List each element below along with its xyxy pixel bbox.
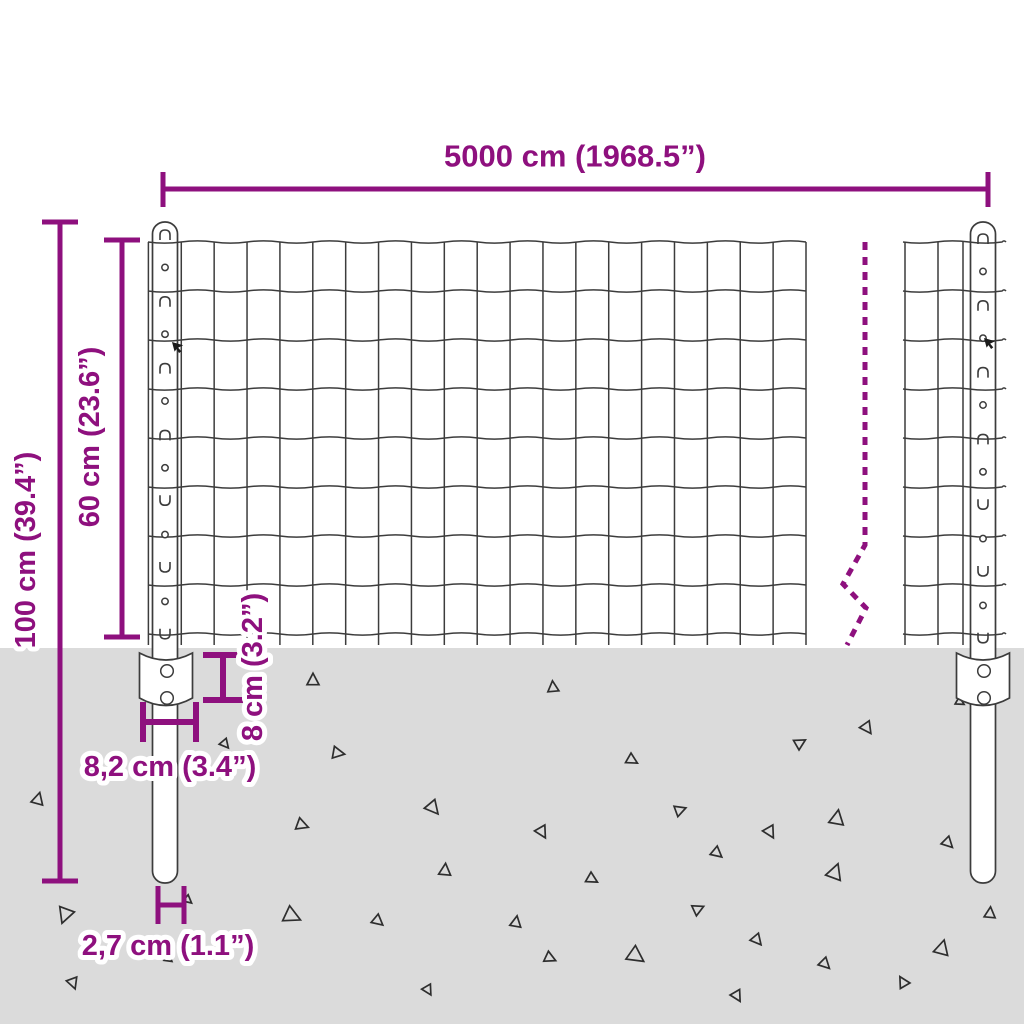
bracket-hole — [161, 692, 174, 705]
post-hole — [162, 398, 168, 404]
width-dimension-line — [163, 172, 988, 207]
width-label: 5000 cm (1968.5”) — [444, 139, 706, 174]
post-hole — [162, 465, 168, 471]
mesh-panel — [148, 241, 1006, 645]
panel-break-dashed-line — [843, 242, 866, 645]
panel-height-dimension-line — [104, 240, 140, 637]
post-hole — [980, 268, 986, 274]
bracket-hole — [978, 665, 991, 678]
post-hole — [980, 535, 986, 541]
post-hole — [162, 331, 168, 337]
post-hole — [980, 469, 986, 475]
left-post — [153, 222, 178, 883]
bracket-hole — [978, 692, 991, 705]
post-hole — [162, 264, 168, 270]
total-height-label: 100 cm (39.4”) — [10, 452, 42, 649]
diagram-canvas: 5000 cm (1968.5”) 100 cm (39.4”) 60 cm (… — [0, 0, 1024, 1024]
post-hole — [162, 598, 168, 604]
panel-height-label: 60 cm (23.6”) — [74, 347, 106, 528]
anchor-width-label: 8,2 cm (3.4”) — [84, 751, 256, 783]
post-hole — [980, 602, 986, 608]
post-hole — [162, 531, 168, 537]
right-post — [971, 222, 996, 883]
bracket-hole — [161, 665, 174, 678]
post-diameter-label: 2,7 cm (1.1”) — [82, 930, 254, 962]
fence-dimension-diagram: 5000 cm (1968.5”) 100 cm (39.4”) 60 cm (… — [0, 0, 1024, 1024]
cursor-marks — [172, 335, 997, 354]
anchor-height-label: 8 cm (3.2”) — [237, 593, 269, 741]
post-hole — [980, 402, 986, 408]
